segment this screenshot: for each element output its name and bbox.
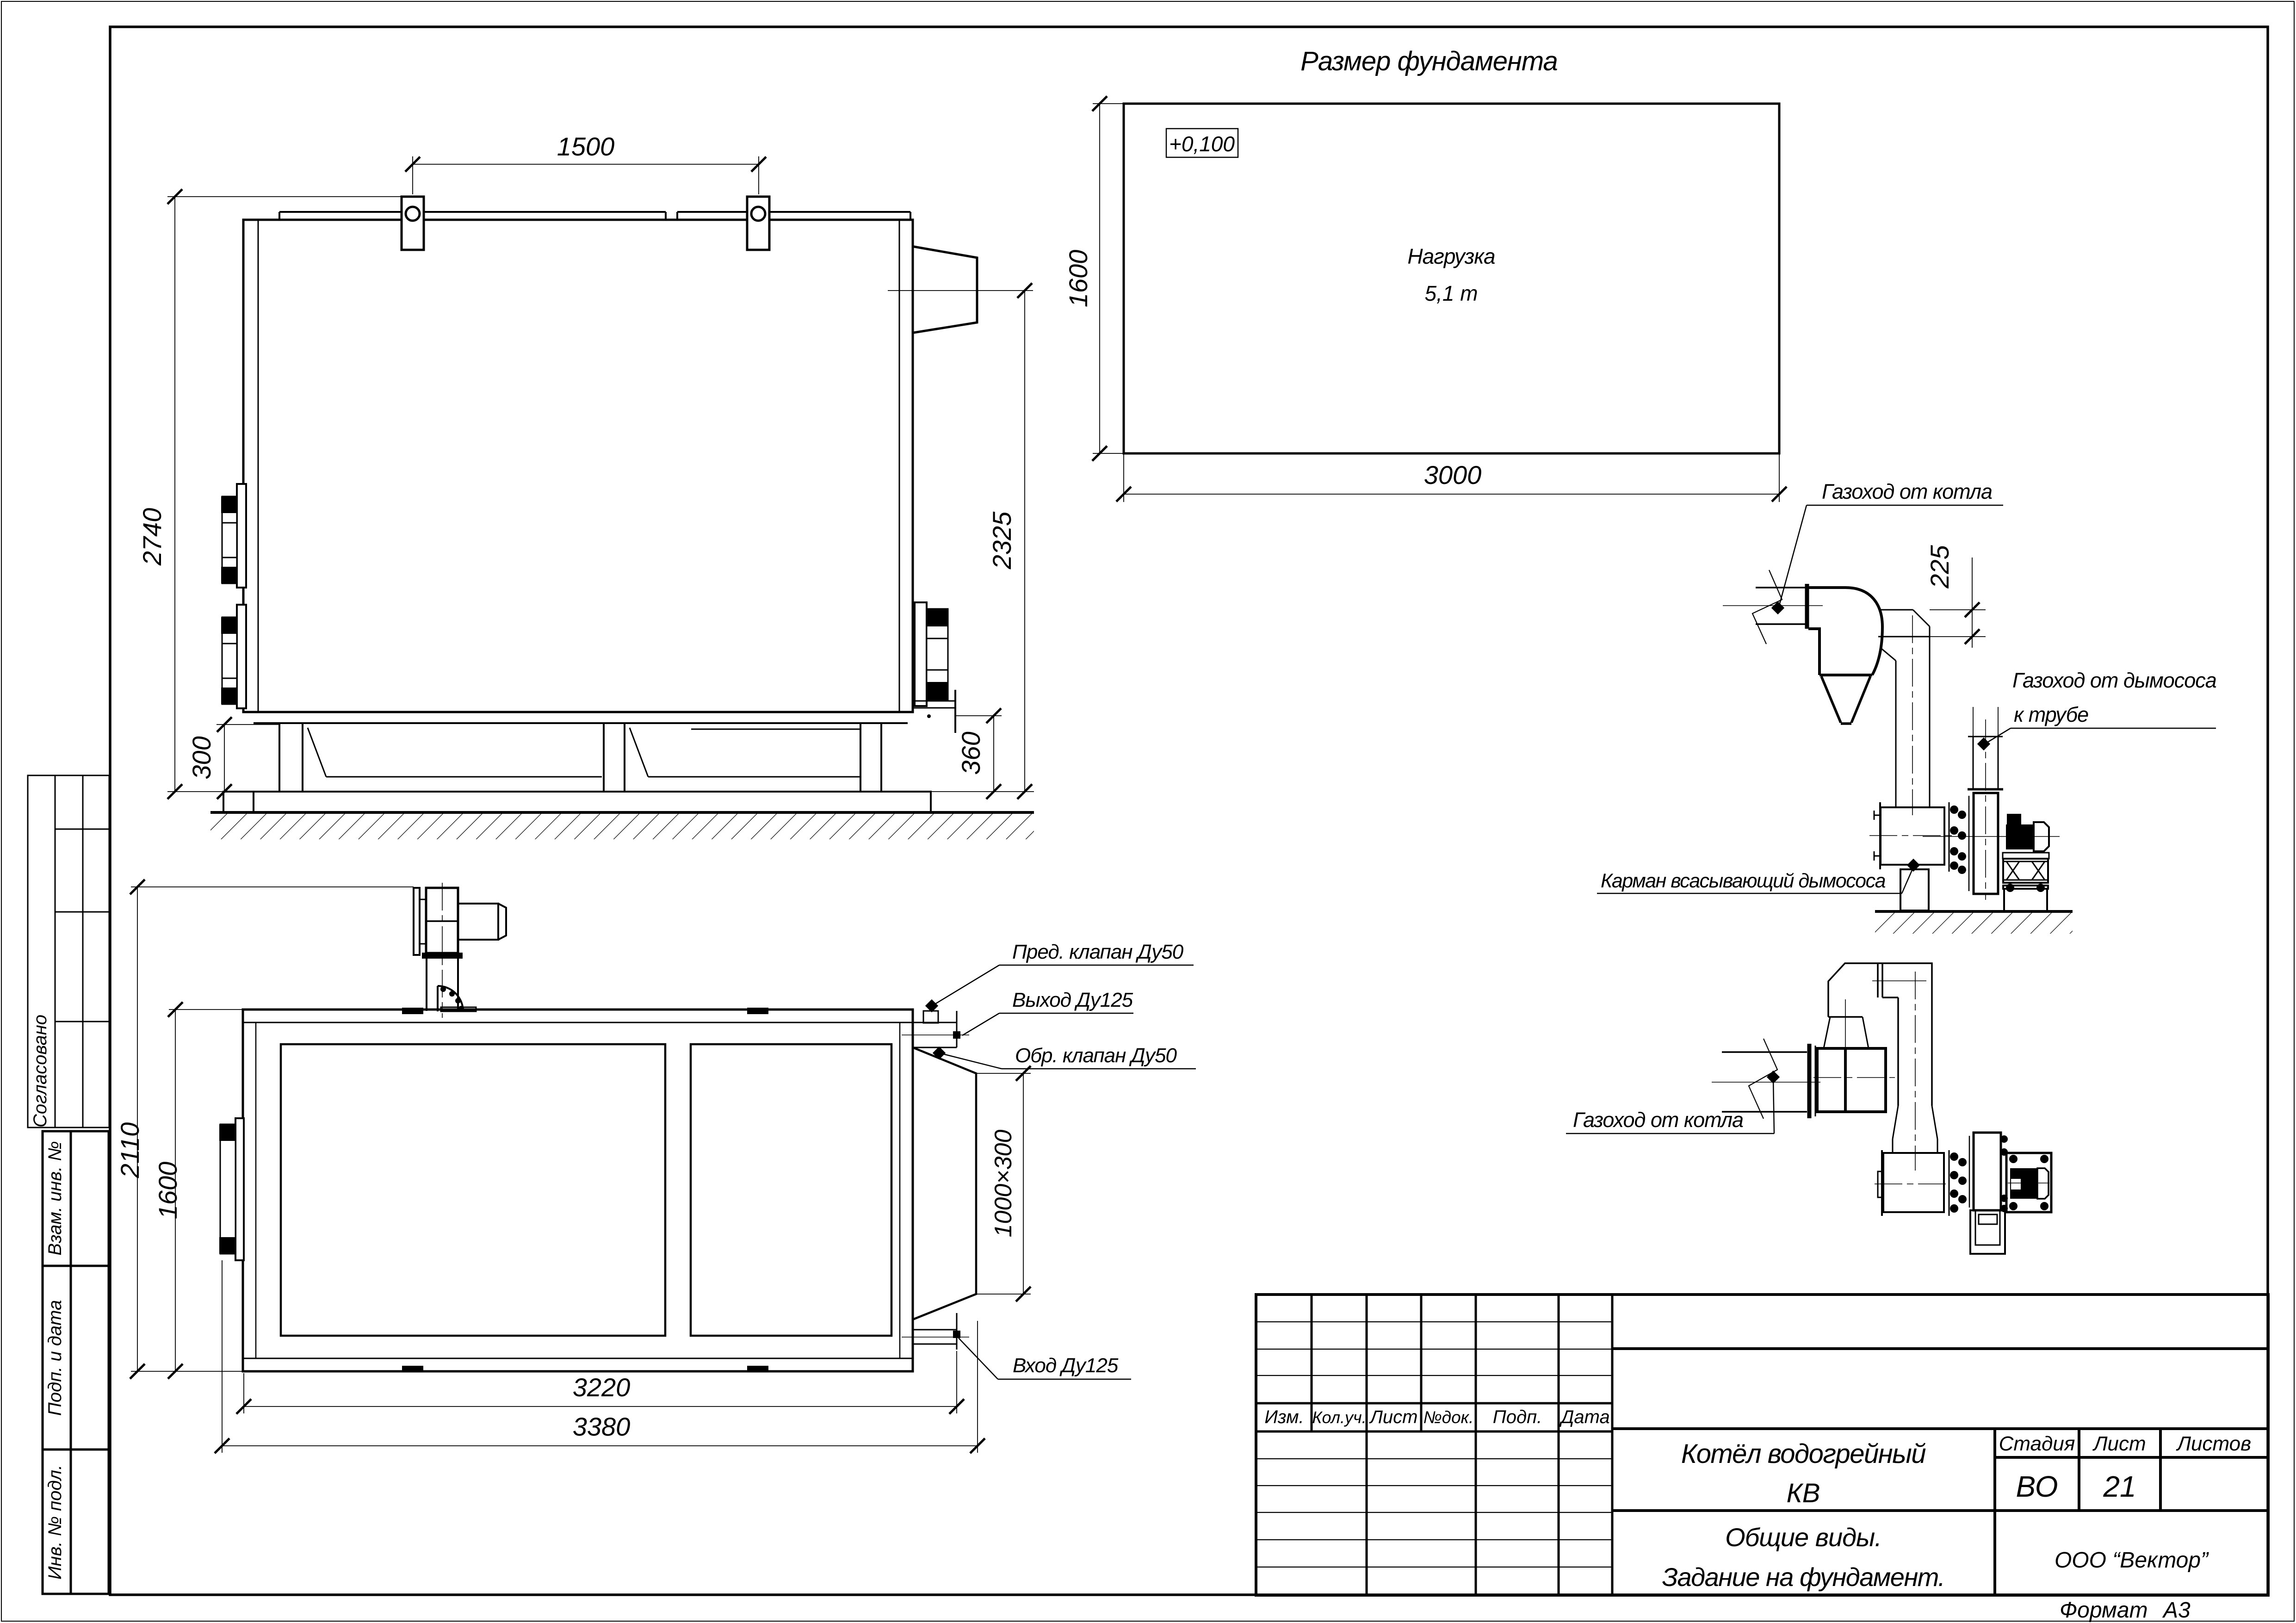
svg-text:2110: 2110 [115,1122,144,1178]
svg-text:2740: 2740 [137,508,167,566]
svg-text:КВ: КВ [1787,1478,1820,1508]
svg-text:Размер фундамента: Размер фундамента [1300,46,1558,76]
svg-text:1000×300: 1000×300 [990,1130,1017,1238]
svg-text:Формат: Формат [2060,1598,2148,1623]
svg-text:№док.: №док. [1423,1408,1474,1427]
svg-text:Вход Ду125: Вход Ду125 [1013,1354,1119,1377]
svg-text:225: 225 [1925,545,1954,588]
svg-text:Общие виды.: Общие виды. [1725,1523,1881,1552]
svg-text:А3: А3 [2162,1598,2191,1623]
svg-text:3380: 3380 [573,1412,631,1441]
svg-text:Газоход от котла: Газоход от котла [1822,480,1992,503]
svg-text:Изм.: Изм. [1264,1407,1304,1427]
svg-text:Согласовано: Согласовано [30,1015,50,1127]
svg-text:Взам. инв. №: Взам. инв. № [45,1141,65,1255]
svg-text:300: 300 [187,736,216,779]
svg-text:Лист: Лист [2092,1432,2146,1455]
svg-text:360: 360 [956,731,985,774]
svg-text:Листов: Листов [2176,1432,2251,1455]
svg-text:Кол.уч.: Кол.уч. [1312,1408,1366,1427]
svg-text:1500: 1500 [557,132,615,161]
svg-text:Задание на фундамент.: Задание на фундамент. [1662,1562,1945,1592]
svg-text:Инв. № подл.: Инв. № подл. [45,1465,65,1580]
svg-text:3220: 3220 [573,1373,631,1402]
svg-text:3000: 3000 [1424,460,1482,489]
svg-text:5,1 т: 5,1 т [1424,281,1478,305]
svg-text:Газоход от дымососа: Газоход от дымососа [2012,669,2216,692]
svg-text:Нагрузка: Нагрузка [1407,244,1495,268]
svg-text:+0,100: +0,100 [1169,132,1235,156]
svg-text:Выход Ду125: Выход Ду125 [1012,989,1133,1011]
svg-text:Газоход от котла: Газоход от котла [1573,1108,1743,1132]
svg-text:ООО “Вектор”: ООО “Вектор” [2055,1548,2209,1573]
svg-text:Карман всасывающий дымососа: Карман всасывающий дымососа [1601,870,1886,892]
svg-text:21: 21 [2103,1470,2136,1503]
svg-text:Подп.: Подп. [1493,1407,1542,1427]
svg-text:Подп. и дата: Подп. и дата [45,1300,65,1416]
svg-text:Лист: Лист [1369,1407,1418,1427]
svg-text:Дата: Дата [1559,1407,1610,1427]
svg-text:Котёл водогрейный: Котёл водогрейный [1681,1439,1926,1469]
svg-text:2325: 2325 [987,511,1016,570]
svg-text:1600: 1600 [1064,250,1093,308]
svg-text:1600: 1600 [153,1162,182,1220]
svg-text:Пред. клапан Ду50: Пред. клапан Ду50 [1012,941,1184,963]
svg-text:Стадия: Стадия [1999,1432,2075,1455]
svg-text:Обр. клапан Ду50: Обр. клапан Ду50 [1015,1044,1177,1067]
svg-text:ВО: ВО [2016,1470,2058,1503]
svg-text:к трубе: к трубе [2014,703,2088,726]
